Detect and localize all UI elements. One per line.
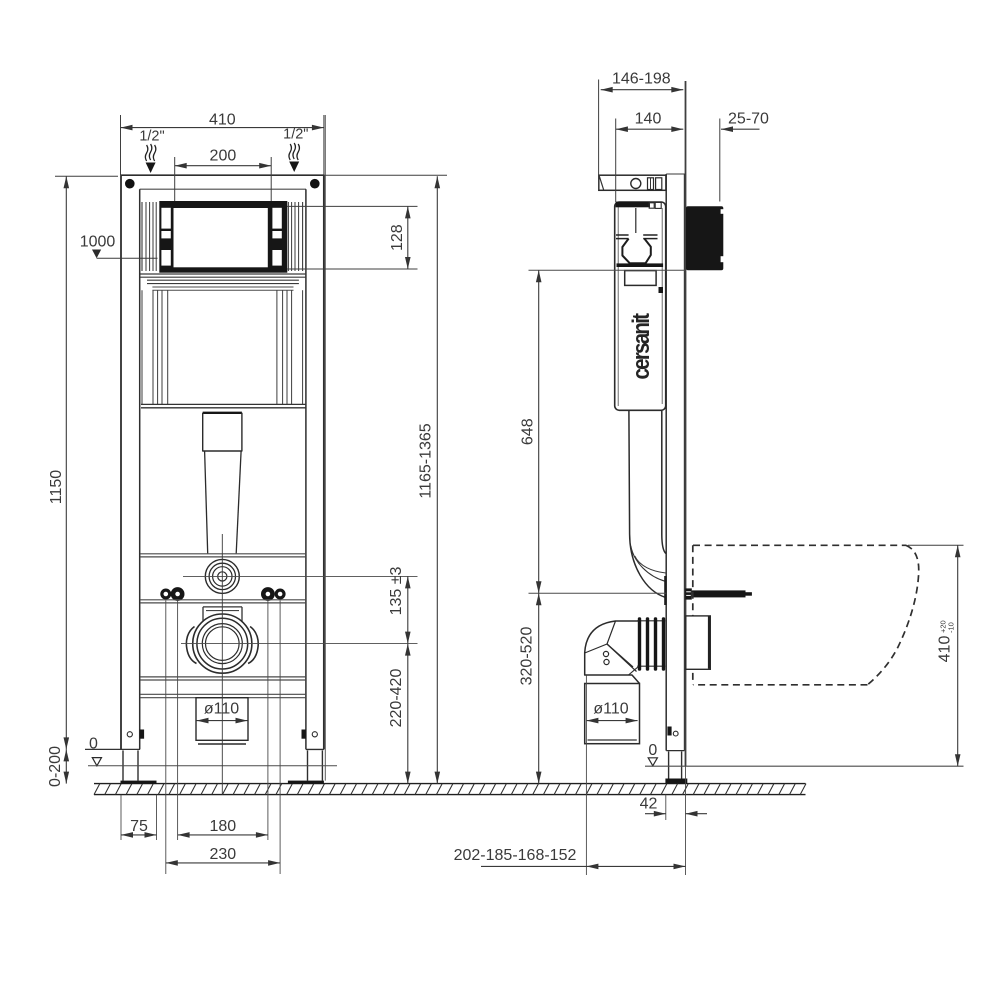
svg-text:200: 200 xyxy=(210,147,237,164)
svg-text:410: 410 xyxy=(937,636,954,663)
svg-text:1165-1365: 1165-1365 xyxy=(417,423,434,498)
svg-text:1/2": 1/2" xyxy=(139,129,164,145)
svg-text:cersanit: cersanit xyxy=(627,313,654,380)
svg-text:202-185-168-152: 202-185-168-152 xyxy=(454,847,577,864)
svg-text:ø110: ø110 xyxy=(204,701,239,718)
svg-text:648: 648 xyxy=(520,418,537,445)
svg-text:230: 230 xyxy=(209,846,236,863)
svg-text:128: 128 xyxy=(389,224,406,251)
svg-text:140: 140 xyxy=(635,110,662,127)
svg-text:146-198: 146-198 xyxy=(612,71,671,88)
svg-text:180: 180 xyxy=(209,818,236,835)
svg-text:1150: 1150 xyxy=(48,470,65,505)
svg-text:ø110: ø110 xyxy=(593,701,628,718)
svg-text:25-70: 25-70 xyxy=(728,110,769,127)
svg-text:135 ±3: 135 ±3 xyxy=(388,566,405,615)
svg-text:1/2": 1/2" xyxy=(283,127,308,143)
svg-text:75: 75 xyxy=(130,818,148,835)
svg-text:220-420: 220-420 xyxy=(388,669,405,728)
svg-text:0: 0 xyxy=(648,742,657,759)
svg-text:0-200: 0-200 xyxy=(47,746,64,787)
svg-text:-10: -10 xyxy=(947,622,956,633)
svg-text:42: 42 xyxy=(640,795,658,812)
svg-text:1000: 1000 xyxy=(80,234,116,251)
svg-text:410: 410 xyxy=(209,111,236,128)
svg-text:320-520: 320-520 xyxy=(519,627,536,686)
